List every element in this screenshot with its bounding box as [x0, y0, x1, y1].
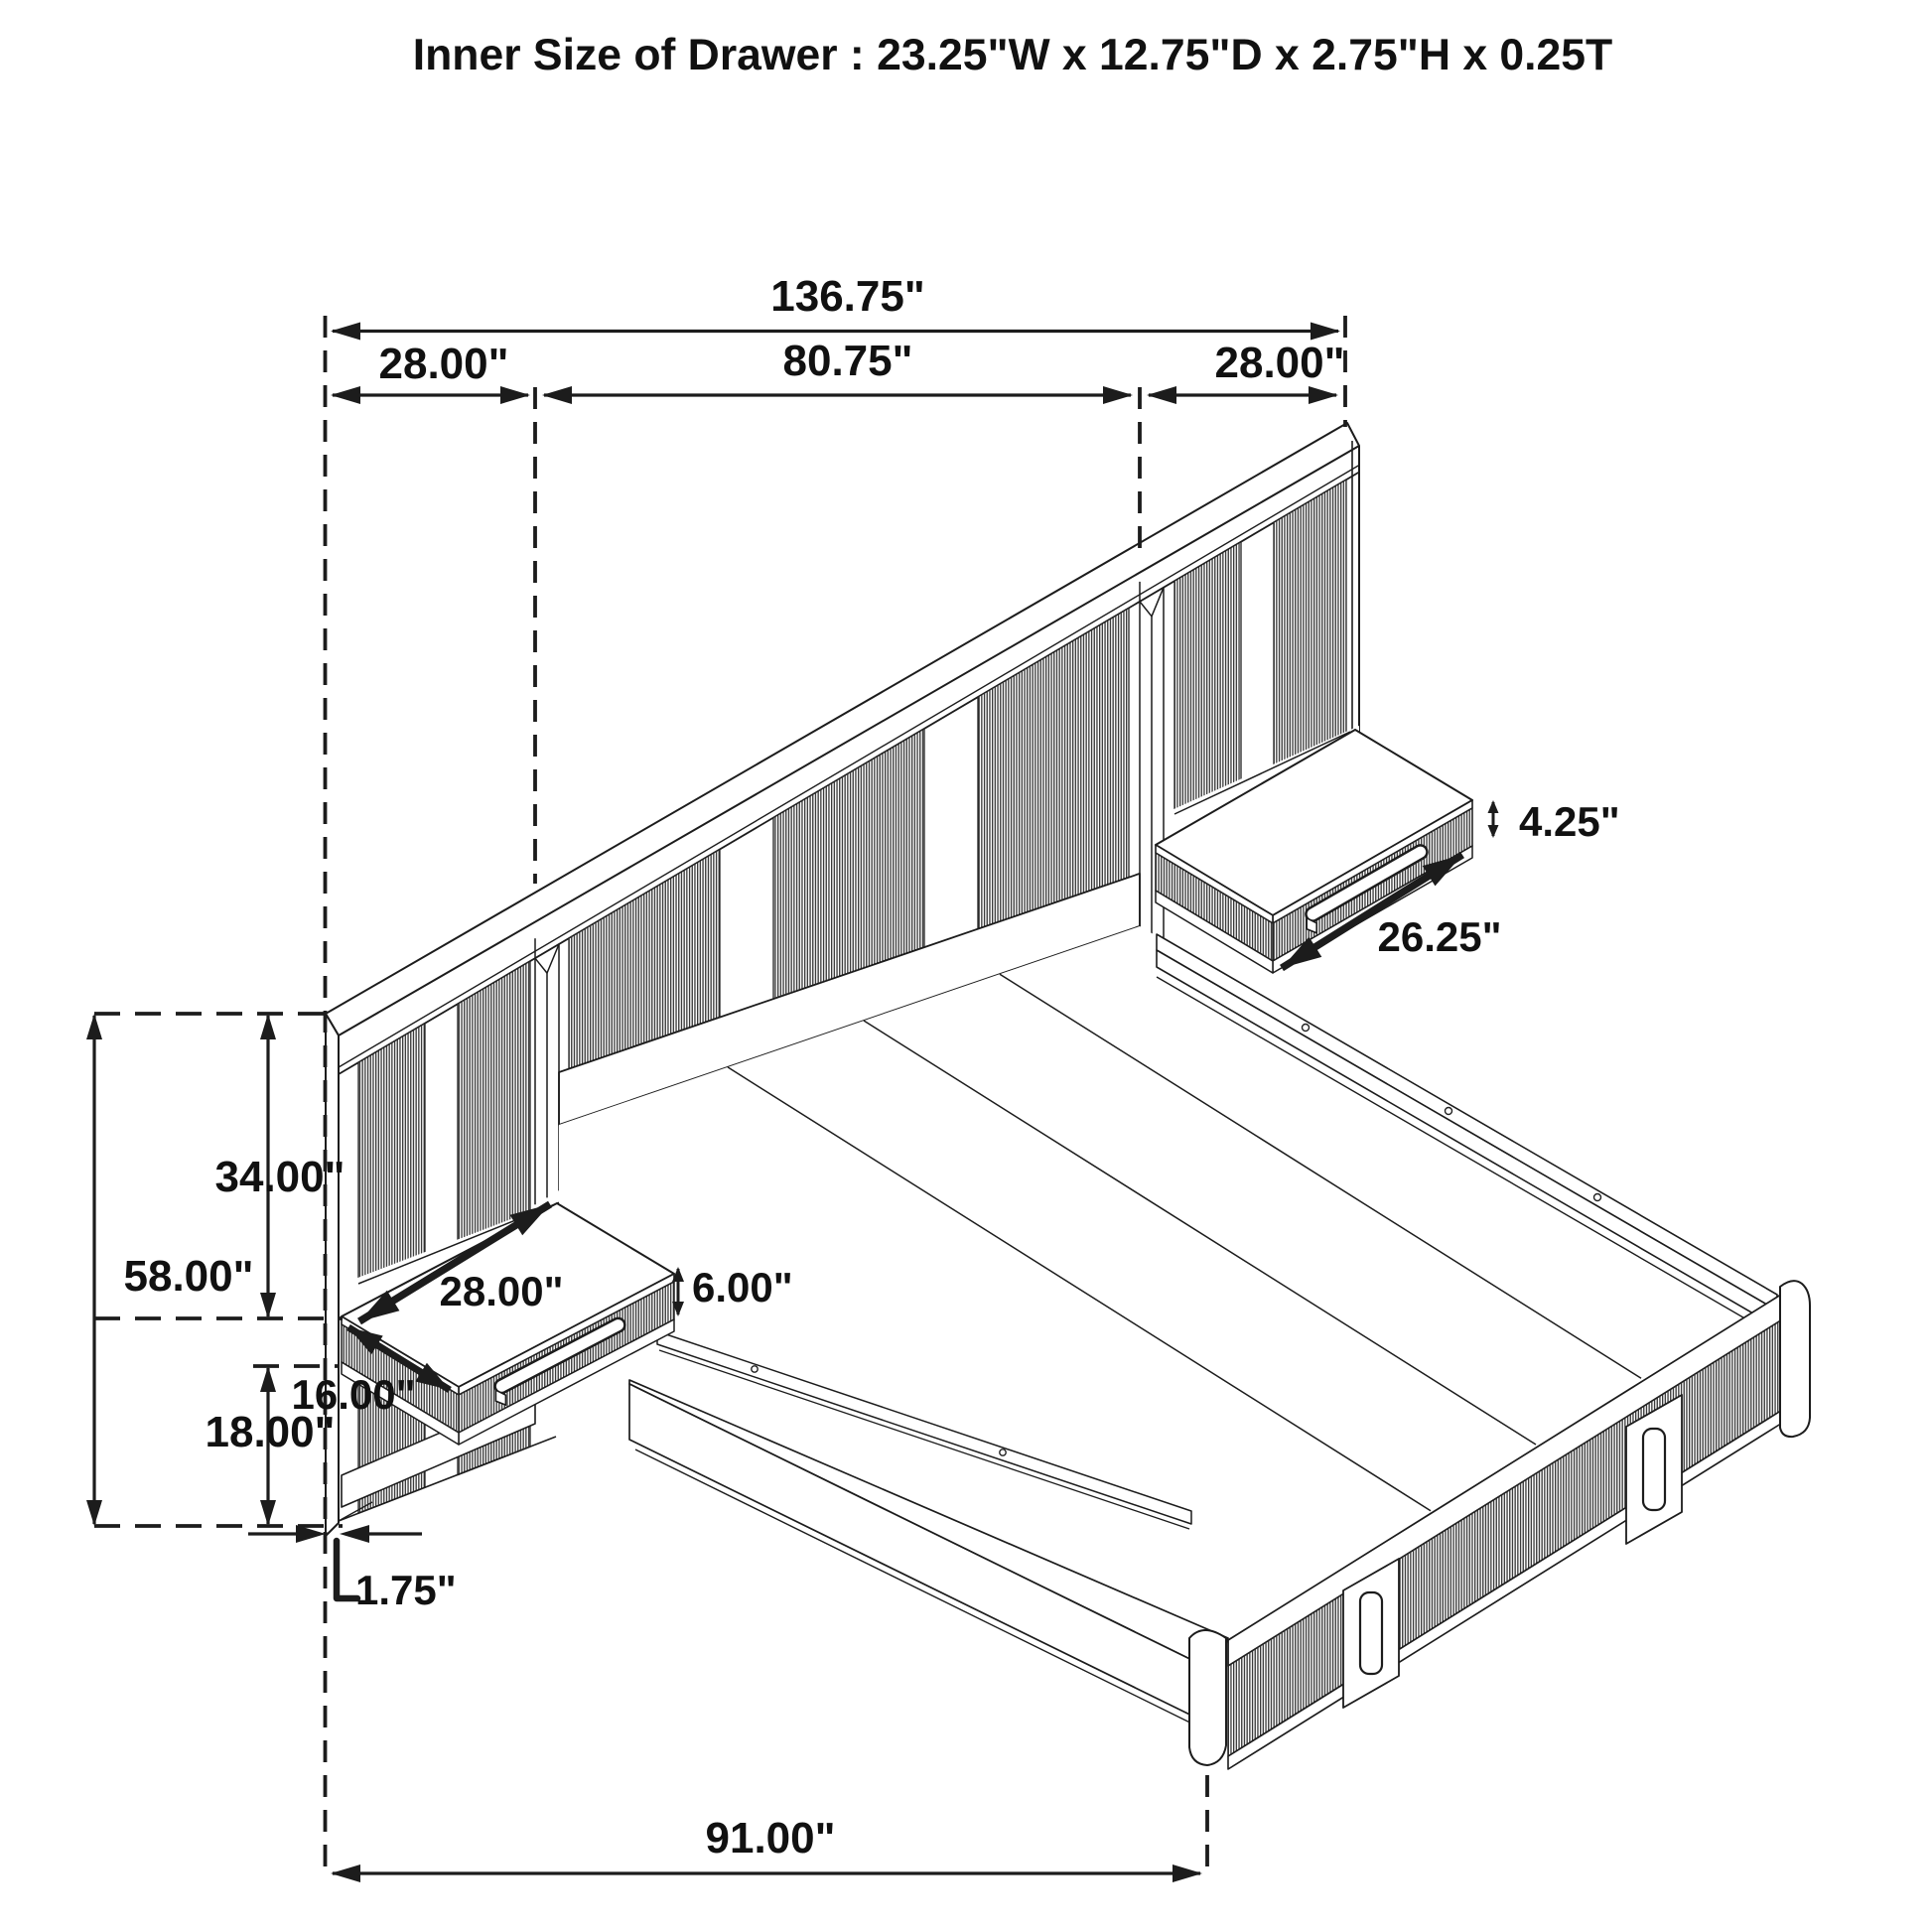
svg-text:Inner Size of Drawer : 23.25"W: Inner Size of Drawer : 23.25"W x 12.75"D…	[413, 31, 1612, 79]
svg-text:58.00": 58.00"	[124, 1252, 254, 1301]
svg-text:4.25": 4.25"	[1519, 798, 1620, 845]
svg-text:34.00": 34.00"	[215, 1153, 345, 1201]
svg-text:6.00": 6.00"	[692, 1264, 793, 1311]
svg-text:91.00": 91.00"	[706, 1814, 836, 1863]
svg-text:1.75": 1.75"	[355, 1567, 457, 1613]
svg-text:28.00": 28.00"	[1215, 339, 1345, 387]
svg-text:16.00": 16.00"	[291, 1371, 415, 1418]
svg-text:26.25": 26.25"	[1377, 913, 1501, 960]
svg-text:28.00": 28.00"	[379, 340, 509, 388]
svg-text:136.75": 136.75"	[770, 272, 924, 321]
svg-text:80.75": 80.75"	[783, 337, 913, 385]
svg-text:28.00": 28.00"	[439, 1268, 563, 1314]
